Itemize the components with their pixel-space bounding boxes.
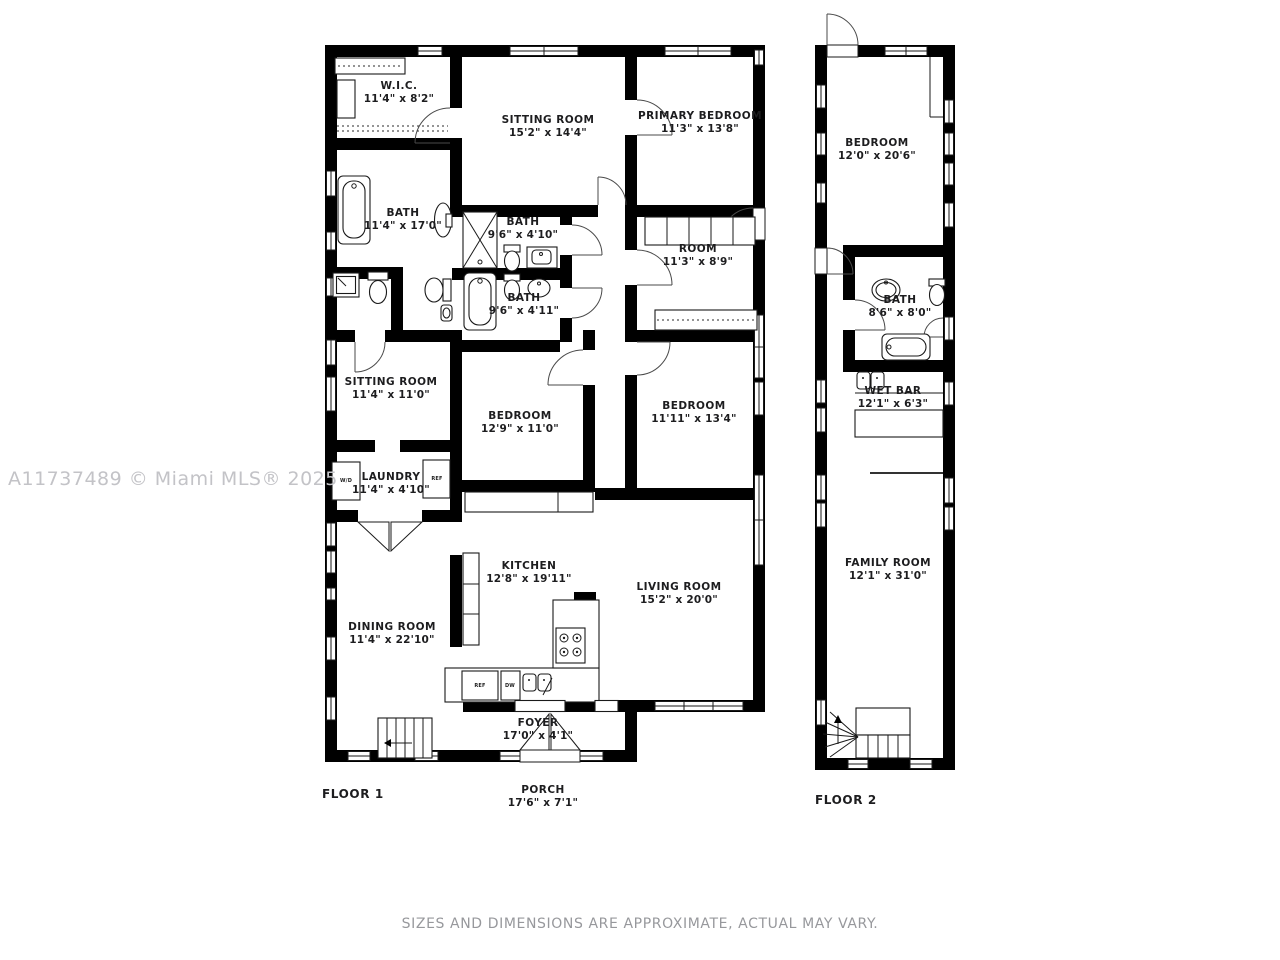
room-label-primary-bedroom: PRIMARY BEDROOM 11'3" x 13'8" [638, 110, 762, 136]
room-label-wic: W.I.C. 11'4" x 8'2" [364, 80, 434, 106]
laundry-ref-label: REF [431, 476, 442, 482]
room-label-bath-2: BATH 9'6" x 4'10" [488, 216, 558, 242]
vanity-sink-icon [527, 247, 557, 268]
room-label-sitting-room-2: SITTING ROOM 11'4" x 11'0" [345, 376, 438, 402]
room-label-laundry: LAUNDRY 11'4" x 4'10" [352, 471, 430, 497]
stove-icon [556, 628, 585, 663]
room-label-sitting-room-1: SITTING ROOM 15'2" x 14'4" [502, 114, 595, 140]
room-label-kitchen: KITCHEN 12'8" x 19'11" [486, 560, 571, 586]
disclaimer-text: SIZES AND DIMENSIONS ARE APPROXIMATE, AC… [402, 916, 879, 932]
toilet-icon [425, 278, 451, 302]
room-label-bath-4: BATH 8'6" x 8'0" [869, 294, 932, 320]
bidet-icon [441, 305, 452, 321]
toilet-icon [504, 245, 520, 271]
room-label-family-room: FAMILY ROOM 12'1" x 31'0" [845, 557, 931, 583]
washer-dryer-label: W/D [340, 478, 352, 484]
floor1-label: FLOOR 1 [322, 787, 384, 801]
room-label-room: ROOM 11'3" x 8'9" [663, 243, 733, 269]
shower-icon [333, 273, 359, 297]
room-label-bath-3: BATH 9'6" x 4'11" [489, 292, 559, 318]
foyer-passthrough [515, 701, 565, 712]
room-label-living-room: LIVING ROOM 15'2" x 20'0" [636, 581, 721, 607]
closet-bedroom [465, 492, 593, 512]
floor2-label: FLOOR 2 [815, 793, 877, 807]
room-label-foyer: FOYER 17'0" x 4'1" [503, 717, 573, 743]
room-label-bedroom-3: BEDROOM 12'0" x 20'6" [838, 137, 916, 163]
room-label-wet-bar: WET BAR 12'1" x 6'3" [858, 385, 928, 411]
closet-room [655, 310, 757, 330]
floorplan-page: W.I.C. 11'4" x 8'2" SITTING ROOM 15'2" x… [0, 0, 1280, 960]
room-label-bath-1: BATH 11'4" x 17'0" [364, 207, 442, 233]
stairs-floor1 [378, 718, 432, 758]
dw-label: DW [505, 683, 515, 689]
wetbar-counter [855, 410, 943, 437]
room-label-bedroom-1: BEDROOM 12'9" x 11'0" [481, 410, 559, 436]
bathtub-icon [882, 334, 930, 360]
foyer-opening [595, 701, 618, 712]
room-label-dining-room: DINING ROOM 11'4" x 22'10" [348, 621, 436, 647]
ref-label: REF [474, 683, 485, 689]
room-label-bedroom-2: BEDROOM 11'11" x 13'4" [651, 400, 736, 426]
closet-primary [645, 217, 755, 245]
mls-watermark: A11737489 © Miami MLS® 2025 [8, 468, 338, 490]
toilet-icon [368, 272, 388, 304]
stairs-floor2 [823, 708, 910, 758]
room-label-porch: PORCH 17'6" x 7'1" [508, 784, 578, 810]
